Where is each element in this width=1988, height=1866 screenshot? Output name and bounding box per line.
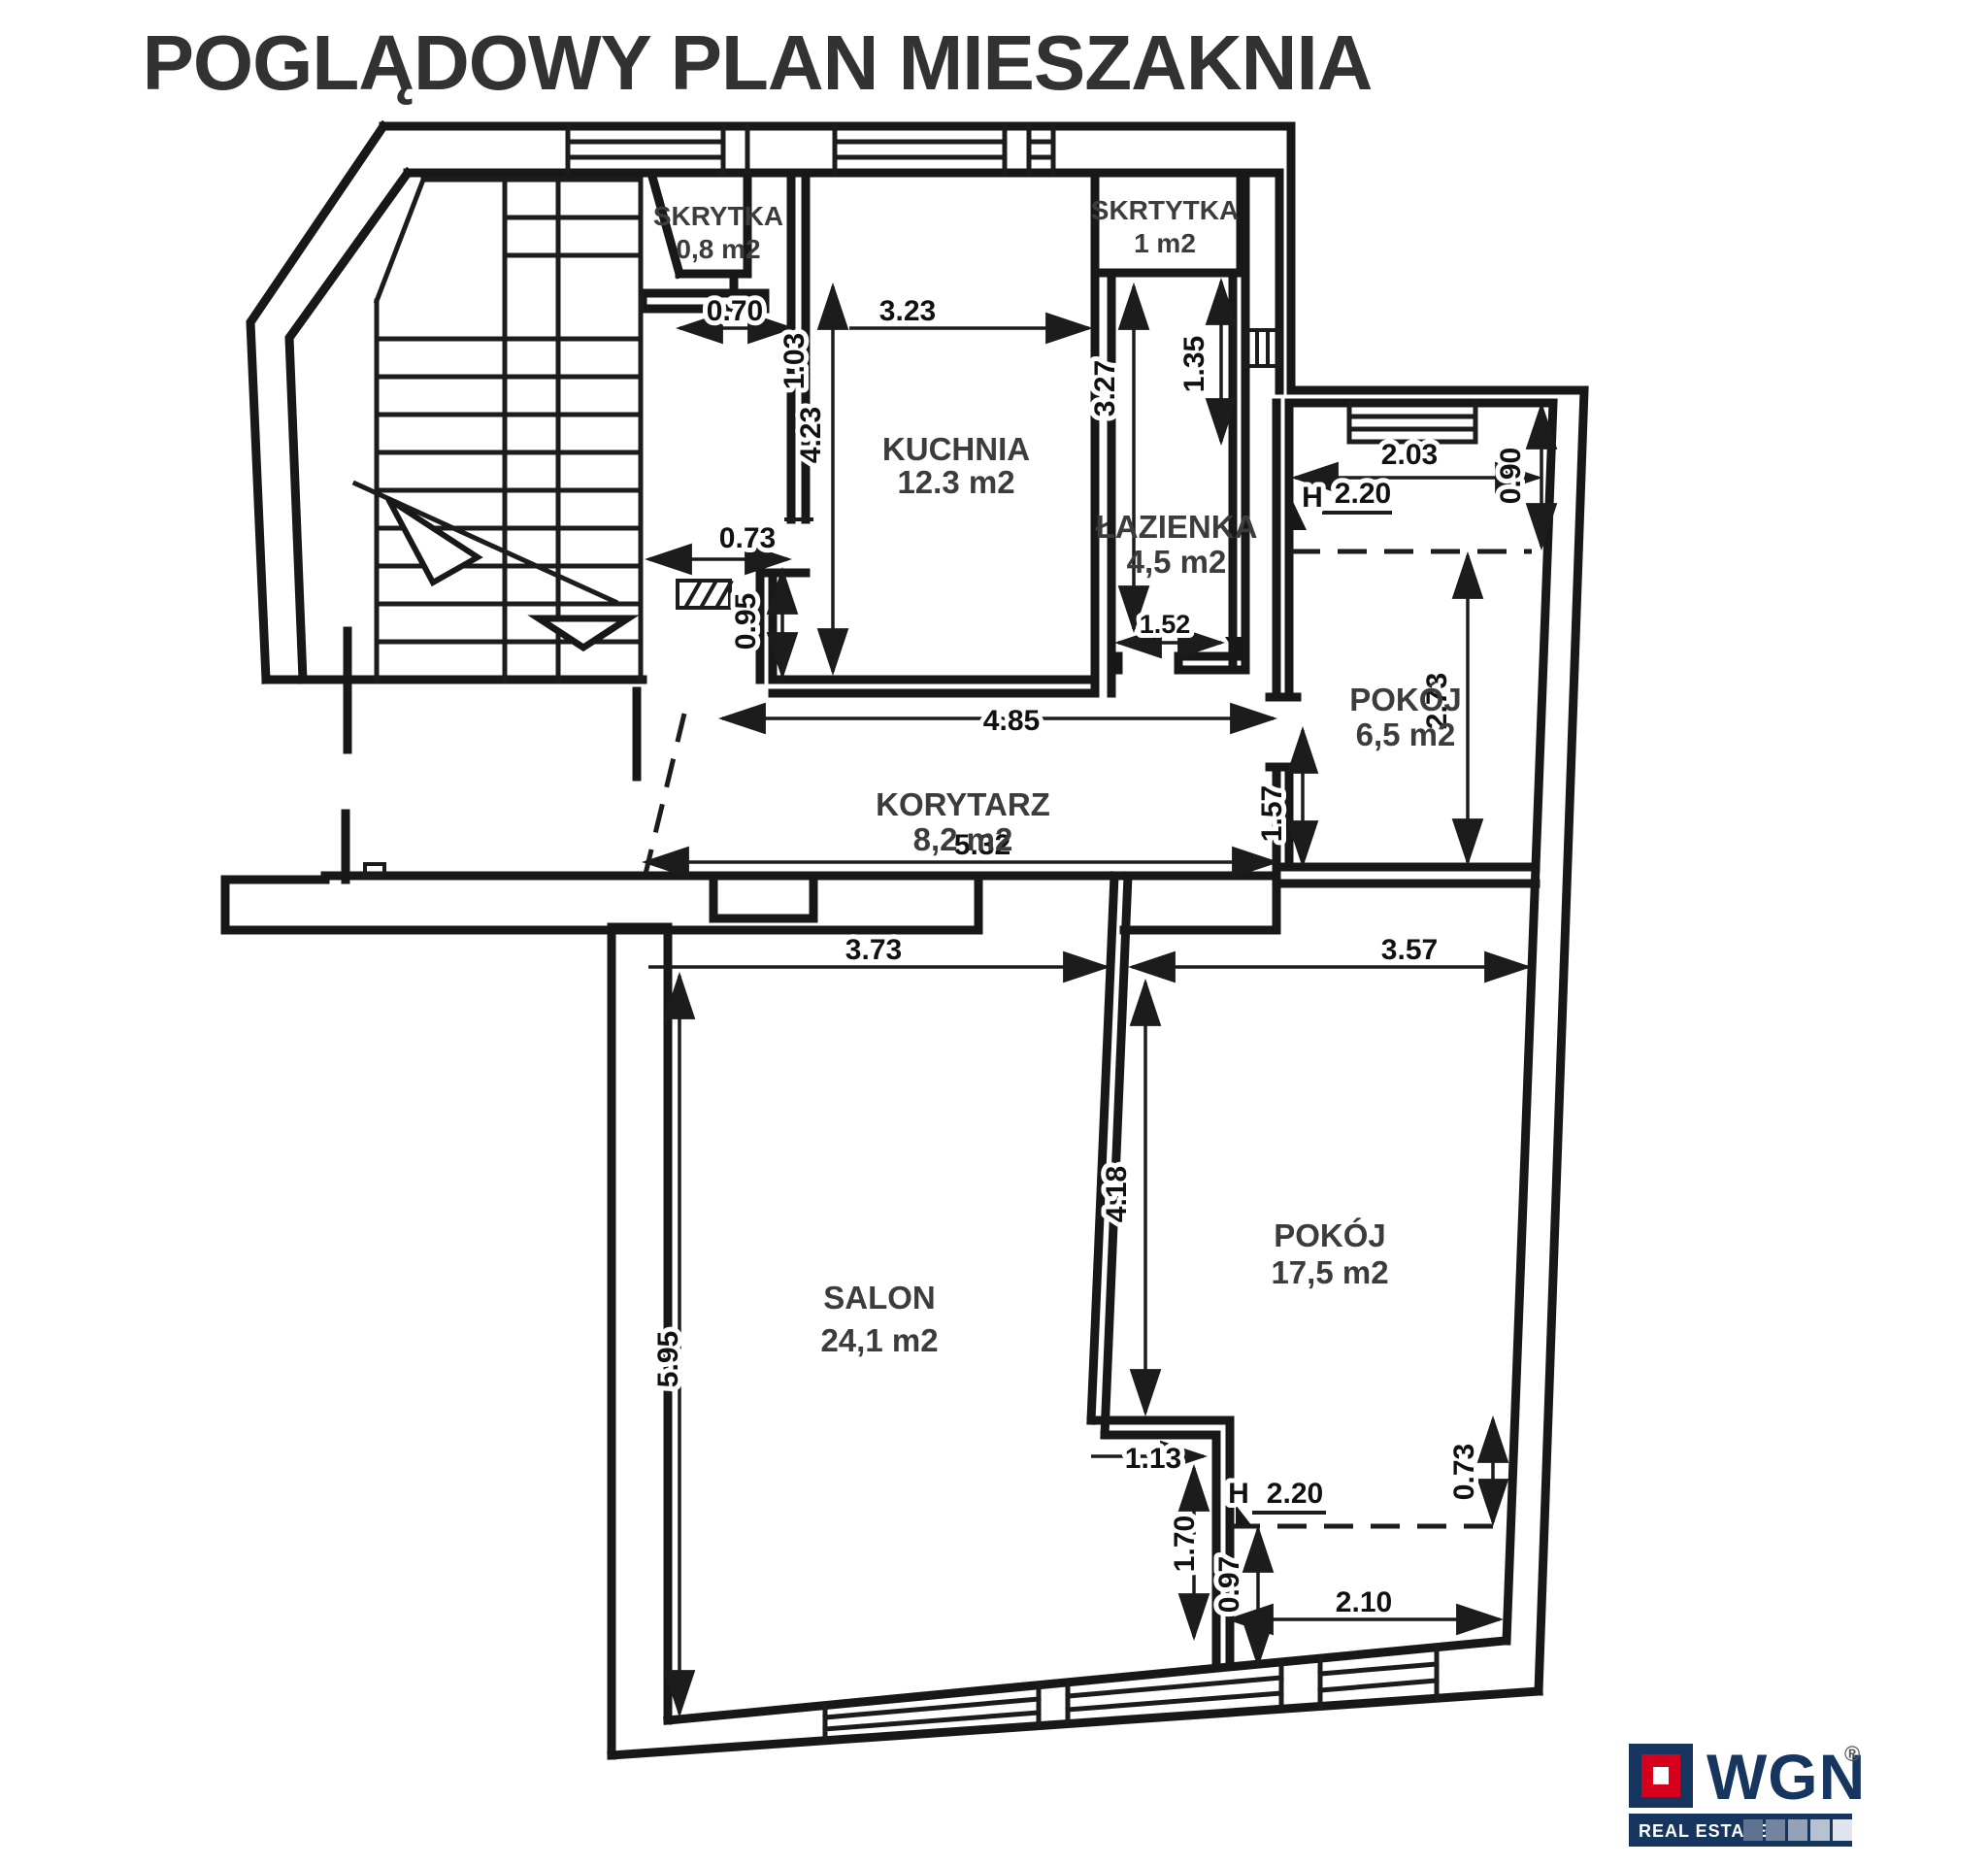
logo-gradient-squares-icon: [1743, 1819, 1852, 1841]
staircase: [355, 180, 641, 680]
height-mark-h-1: H: [1302, 482, 1323, 514]
dim-3-73: 3.73: [845, 934, 902, 966]
room-korytarz-area: 8,2 m2: [913, 821, 1013, 857]
room-labels: SKRYTKA 0,8 m2 SKRTYTKA 1 m2 KUCHNIA 12.…: [653, 195, 1462, 1358]
room-lazienka-name: ŁAZIENKA: [1096, 509, 1258, 545]
window-vent: [1245, 330, 1279, 366]
dim-0-90: 0.90: [1495, 448, 1527, 504]
logo-brand-text: WGN: [1706, 1741, 1866, 1813]
room-pokoj-maly-area: 6,5 m2: [1356, 716, 1456, 752]
stair-steps: [377, 217, 641, 642]
dim-h-2-20b: 2.20: [1267, 1478, 1323, 1510]
dim-4-85: 4.85: [983, 705, 1040, 737]
dim-h-2-20a: 2.20: [1335, 478, 1391, 510]
floor-plan-canvas: POGLĄDOWY PLAN MIESZAKNIA: [0, 0, 1988, 1866]
wall-salon-outer: [612, 927, 1539, 1755]
room-kuchnia-area: 12.3 m2: [897, 464, 1014, 500]
room-skrytka-left-area: 0,8 m2: [676, 234, 760, 264]
page-title: POGLĄDOWY PLAN MIESZAKNIA: [143, 19, 1373, 106]
window-top-wall: [568, 126, 1053, 173]
dim-1-13: 1.13: [1125, 1443, 1181, 1475]
dim-1-52: 1.52: [1140, 610, 1191, 639]
detail-ticks: [365, 513, 1392, 1513]
room-skrytka-left-name: SKRYTKA: [653, 201, 783, 231]
dim-1-35: 1.35: [1178, 336, 1210, 392]
room-korytarz-name: KORYTARZ: [876, 786, 1050, 822]
dim-3-23: 3.23: [879, 295, 936, 327]
stair-arrow-icon: [388, 499, 478, 583]
dim-0-73a: 0.73: [719, 522, 776, 554]
dim-4-23: 4.23: [795, 407, 827, 463]
wall-outer-shell: [250, 126, 1584, 1691]
room-pokoj-maly-name: POKÓJ: [1349, 682, 1462, 717]
dim-3-27: 3.27: [1089, 360, 1121, 417]
room-salon-area: 24,1 m2: [820, 1322, 938, 1358]
room-skrytka-right-area: 1 m2: [1134, 228, 1196, 258]
room-lazienka-area: 4,5 m2: [1127, 544, 1227, 580]
hatch-box: [678, 581, 732, 608]
dim-3-57: 3.57: [1381, 934, 1438, 966]
height-mark-h-2: H: [1228, 1478, 1249, 1510]
room-pokoj-duzy-area: 17,5 m2: [1271, 1254, 1388, 1290]
room-pokoj-duzy-name: POKÓJ: [1274, 1217, 1386, 1253]
dim-1-70: 1.70: [1169, 1516, 1201, 1572]
room-salon-name: SALON: [823, 1280, 936, 1316]
dim-1-03: 1.03: [779, 333, 811, 389]
dim-0-95: 0.95: [730, 593, 762, 650]
dim-0-70: 0.70: [707, 295, 763, 327]
dim-4-18: 4.18: [1101, 1166, 1133, 1222]
dim-0-73b: 0.73: [1448, 1444, 1480, 1500]
dim-2-10: 2.10: [1336, 1586, 1392, 1618]
dim-0-97: 0.97: [1213, 1556, 1245, 1613]
dim-2-03: 2.03: [1381, 439, 1438, 471]
dim-5-95: 5.95: [652, 1331, 684, 1387]
floor-plan-page: POGLĄDOWY PLAN MIESZAKNIA: [0, 0, 1988, 1866]
room-kuchnia-name: KUCHNIA: [882, 431, 1030, 467]
wall-partition: [1091, 876, 1230, 1666]
logo-registered-mark: ®: [1844, 1742, 1860, 1766]
window-pokoj-maly: [1349, 403, 1475, 442]
dim-1-57: 1.57: [1256, 785, 1288, 842]
wgn-logo: WGN ® REAL ESTATE: [1629, 1741, 1866, 1847]
room-skrytka-right-name: SKRTYTKA: [1091, 195, 1239, 225]
logo-white-square-icon: [1653, 1767, 1669, 1784]
